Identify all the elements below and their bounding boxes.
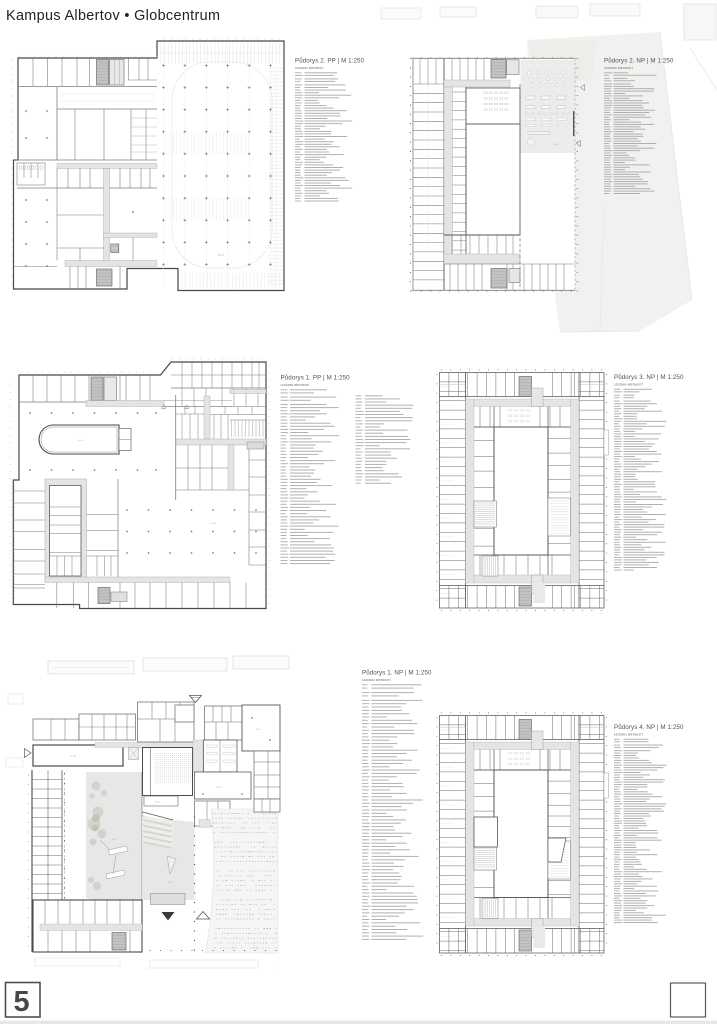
svg-text:09.90: 09.90: [112, 839, 117, 841]
svg-text:Půdorys 1. PP | M 1:250: Půdorys 1. PP | M 1:250: [281, 375, 351, 382]
svg-text:5: 5: [14, 986, 30, 1018]
svg-text:LEGENDA MÍSTNOSTÍ: LEGENDA MÍSTNOSTÍ: [614, 733, 643, 736]
svg-text:LEGENDA MÍSTNOSTÍ: LEGENDA MÍSTNOSTÍ: [295, 67, 324, 70]
svg-text:LEGENDA MÍSTNOSTÍ: LEGENDA MÍSTNOSTÍ: [614, 383, 643, 386]
svg-text:08.180: 08.180: [70, 756, 77, 758]
svg-text:08.150: 08.150: [155, 802, 161, 804]
svg-text:Půdorys 2. NP | M 1:250: Půdorys 2. NP | M 1:250: [604, 58, 674, 65]
svg-text:LEGENDA MÍSTNOSTÍ: LEGENDA MÍSTNOSTÍ: [362, 679, 391, 682]
svg-text:LEGENDA MÍSTNOSTÍ: LEGENDA MÍSTNOSTÍ: [281, 384, 310, 387]
svg-text:LEGENDA MÍSTNOSTÍ: LEGENDA MÍSTNOSTÍ: [604, 67, 633, 70]
svg-text:14.105: 14.105: [216, 787, 222, 789]
svg-text:Půdorys 3. NP | M 1:250: Půdorys 3. NP | M 1:250: [614, 374, 684, 381]
svg-text:09.100: 09.100: [168, 882, 174, 884]
svg-text:Půdorys 4. NP | M 1:250: Půdorys 4. NP | M 1:250: [614, 724, 684, 731]
svg-text:14.245: 14.245: [210, 523, 217, 525]
svg-text:09.80: 09.80: [78, 440, 84, 442]
svg-text:Půdorys 2. PP | M 1:250: Půdorys 2. PP | M 1:250: [295, 58, 365, 65]
svg-text:Kampus Albertov • Globcentrum: Kampus Albertov • Globcentrum: [6, 8, 220, 24]
svg-text:14.80: 14.80: [553, 144, 558, 146]
svg-text:03.07: 03.07: [256, 729, 261, 731]
svg-text:Půdorys 1. NP | M 1:250: Půdorys 1. NP | M 1:250: [362, 670, 432, 677]
svg-text:05.01: 05.01: [218, 255, 224, 257]
